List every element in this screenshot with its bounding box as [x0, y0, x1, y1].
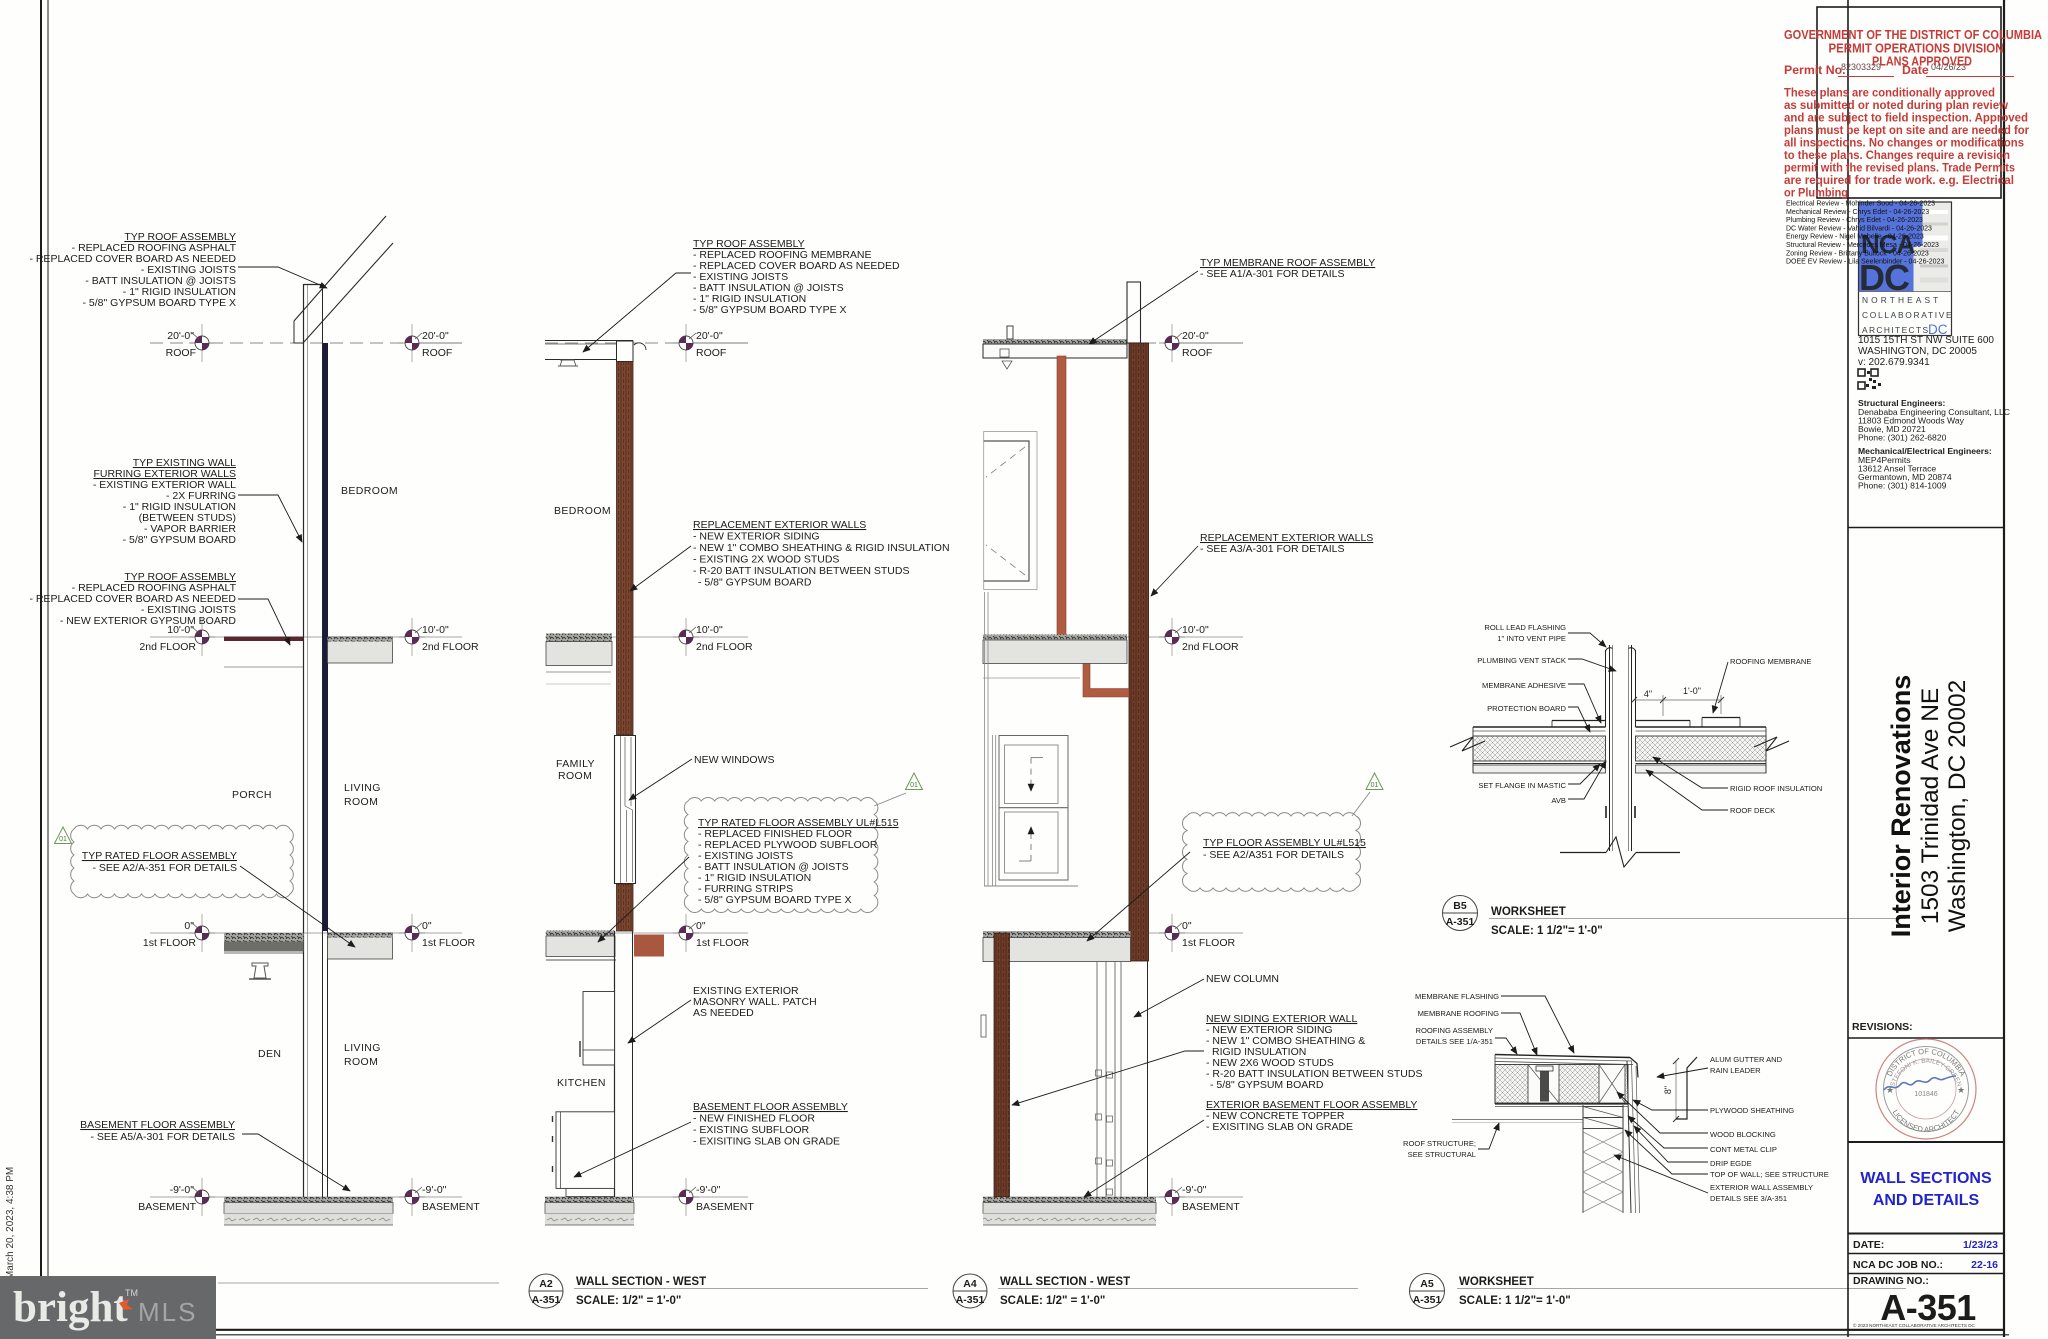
svg-text:ALUM GUTTER AND: ALUM GUTTER AND	[1710, 1055, 1783, 1064]
svg-text:- EXISTING SUBFLOOR: - EXISTING SUBFLOOR	[693, 1124, 810, 1136]
svg-text:DRAWING NO.:: DRAWING NO.:	[1853, 1275, 1929, 1287]
svg-text:20'-0": 20'-0"	[696, 330, 723, 342]
svg-text:A4: A4	[963, 1278, 977, 1290]
svg-text:- NEW EXTERIOR SIDING: - NEW EXTERIOR SIDING	[693, 531, 820, 543]
svg-text:BEDROOM: BEDROOM	[341, 485, 398, 497]
svg-text:1st FLOOR: 1st FLOOR	[422, 937, 476, 949]
svg-text:2nd FLOOR: 2nd FLOOR	[139, 641, 196, 653]
svg-text:- EXISITING SLAB ON GRADE: - EXISITING SLAB ON GRADE	[693, 1136, 840, 1148]
svg-text:10'-0": 10'-0"	[1182, 624, 1209, 636]
svg-text:MLS: MLS	[138, 1297, 197, 1327]
svg-text:NEW WINDOWS: NEW WINDOWS	[694, 754, 775, 766]
svg-text:ROOFING ASSEMBLY: ROOFING ASSEMBLY	[1415, 1026, 1493, 1035]
svg-text:bright: bright	[13, 1284, 128, 1331]
svg-text:WASHINGTON, DC 20005: WASHINGTON, DC 20005	[1858, 346, 1977, 357]
svg-text:B5: B5	[1453, 900, 1467, 912]
svg-text:ROOF DECK: ROOF DECK	[1730, 806, 1775, 815]
svg-text:DC Water Review - Vahid Bilvar: DC Water Review - Vahid Bilvardi - 04-26…	[1786, 225, 1932, 232]
svg-text:2nd FLOOR: 2nd FLOOR	[696, 641, 753, 653]
svg-text:ROOF: ROOF	[422, 347, 452, 359]
svg-text:v: 202.679.9341: v: 202.679.9341	[1858, 357, 1930, 368]
svg-text:20'-0": 20'-0"	[422, 330, 449, 342]
svg-text:AND DETAILS: AND DETAILS	[1873, 1192, 1980, 1209]
svg-text:-9'-0": -9'-0"	[696, 1184, 721, 1196]
svg-text:SET FLANGE IN MASTIC: SET FLANGE IN MASTIC	[1478, 781, 1566, 790]
svg-text:SCALE: 1 1/2"= 1'-0": SCALE: 1 1/2"= 1'-0"	[1491, 925, 1603, 937]
svg-text:A-351: A-351	[1880, 1287, 1976, 1328]
svg-text:BEDROOM: BEDROOM	[554, 505, 611, 517]
svg-text:REVISIONS:: REVISIONS:	[1852, 1021, 1913, 1033]
svg-text:1st FLOOR: 1st FLOOR	[1182, 937, 1236, 949]
svg-text:20'-0": 20'-0"	[1182, 330, 1209, 342]
svg-text:01: 01	[59, 836, 67, 843]
svg-text:DOEE EV Review - Lila Seelenbi: DOEE EV Review - Lila Seelenbinder - 04-…	[1786, 259, 1944, 266]
svg-text:- SEE A2/A-351 FOR DETAILS: - SEE A2/A-351 FOR DETAILS	[92, 862, 237, 874]
svg-text:A5: A5	[1420, 1278, 1434, 1290]
svg-text:Permit No.: Permit No.	[1784, 63, 1846, 77]
svg-text:SCALE: 1/2" = 1'-0": SCALE: 1/2" = 1'-0"	[1000, 1295, 1105, 1307]
svg-text:TYP RATED FLOOR ASSEMBLY: TYP RATED FLOOR ASSEMBLY	[82, 850, 237, 862]
svg-text:RAIN LEADER: RAIN LEADER	[1710, 1066, 1761, 1075]
svg-text:- SEE A1/A-301 FOR DETAILS: - SEE A1/A-301 FOR DETAILS	[1200, 268, 1345, 280]
svg-text:AS NEEDED: AS NEEDED	[693, 1007, 754, 1019]
svg-text:- SEE A3/A-301 FOR DETAILS: - SEE A3/A-301 FOR DETAILS	[1200, 543, 1345, 555]
svg-text:WORKSHEET: WORKSHEET	[1491, 906, 1566, 918]
svg-text:© 2023 NORTHEAST COLLABORATIVE: © 2023 NORTHEAST COLLABORATIVE ARCHITECT…	[1853, 1322, 1976, 1328]
svg-text:0": 0"	[696, 920, 706, 932]
svg-text:ROOM: ROOM	[344, 1056, 378, 1068]
svg-text:Zoning Review - Brittany Bullo: Zoning Review - Brittany Bullock - 04-26…	[1786, 250, 1929, 257]
svg-text:01: 01	[910, 782, 918, 789]
svg-text:8": 8"	[1663, 1086, 1673, 1094]
svg-text:TM: TM	[125, 1288, 138, 1298]
svg-text:WALL SECTIONS: WALL SECTIONS	[1860, 1170, 1992, 1187]
svg-text:BASEMENT: BASEMENT	[696, 1201, 754, 1213]
svg-text:DETAILS SEE 3/A-351: DETAILS SEE 3/A-351	[1710, 1194, 1787, 1203]
svg-text:- 5/8" GYPSUM BOARD TYPE X: - 5/8" GYPSUM BOARD TYPE X	[698, 894, 852, 906]
svg-text:82303329: 82303329	[1841, 62, 1881, 72]
svg-text:AVB: AVB	[1551, 796, 1566, 805]
svg-text:A2: A2	[539, 1278, 553, 1290]
svg-text:10'-0": 10'-0"	[422, 624, 449, 636]
svg-text:A-351: A-351	[1446, 916, 1475, 928]
svg-text:Date: Date	[1902, 63, 1929, 77]
svg-text:SEE STRUCTURAL: SEE STRUCTURAL	[1408, 1150, 1476, 1159]
svg-text:01: 01	[1371, 782, 1379, 789]
svg-text:PLUMBING VENT STACK: PLUMBING VENT STACK	[1477, 656, 1566, 665]
svg-text:-9'-0": -9'-0"	[1182, 1184, 1207, 1196]
svg-text:ROOF: ROOF	[1182, 347, 1212, 359]
svg-text:ROOF STRUCTURE;: ROOF STRUCTURE;	[1403, 1139, 1476, 1148]
svg-text:DRIP EGDE: DRIP EGDE	[1710, 1159, 1752, 1168]
svg-text:DATE:: DATE:	[1853, 1239, 1884, 1251]
svg-text:ROOFING MEMBRANE: ROOFING MEMBRANE	[1730, 657, 1811, 666]
svg-text:A-351: A-351	[532, 1294, 561, 1306]
svg-text:WOOD BLOCKING: WOOD BLOCKING	[1710, 1130, 1776, 1139]
svg-text:DETAILS SEE 1/A-351: DETAILS SEE 1/A-351	[1416, 1037, 1493, 1046]
svg-text:ROOM: ROOM	[558, 770, 592, 782]
svg-text:- 5/8" GYPSUM BOARD: - 5/8" GYPSUM BOARD	[698, 577, 812, 589]
svg-text:1015 15TH ST NW SUITE 600: 1015 15TH ST NW SUITE 600	[1858, 335, 1994, 346]
svg-text:- 5/8" GYPSUM BOARD: - 5/8" GYPSUM BOARD	[123, 534, 237, 546]
svg-text:- SEE A2/A351 FOR DETAILS: - SEE A2/A351 FOR DETAILS	[1203, 849, 1344, 861]
svg-text:Mechanical Review - Chrys Edet: Mechanical Review - Chrys Edet - 04-26-2…	[1786, 209, 1929, 216]
svg-text:or Plumbing: or Plumbing	[1784, 186, 1848, 200]
svg-text:SCALE: 1 1/2"= 1'-0": SCALE: 1 1/2"= 1'-0"	[1459, 1295, 1571, 1307]
svg-text:PROTECTION BOARD: PROTECTION BOARD	[1487, 704, 1566, 713]
svg-text:A-351: A-351	[1413, 1294, 1442, 1306]
svg-text:-9'-0": -9'-0"	[170, 1184, 195, 1196]
svg-text:COLLABORATIVE: COLLABORATIVE	[1862, 310, 1953, 320]
svg-text:2nd FLOOR: 2nd FLOOR	[1182, 641, 1239, 653]
svg-text:1/23/23: 1/23/23	[1963, 1239, 1998, 1251]
svg-text:1" INTO VENT PIPE: 1" INTO VENT PIPE	[1497, 634, 1566, 643]
svg-text:Structural Review - Mercedes M: Structural Review - Mercedes Mesa - 04-2…	[1786, 242, 1939, 249]
svg-text:KITCHEN: KITCHEN	[557, 1077, 606, 1089]
svg-text:Interior Renovations: Interior Renovations	[1886, 675, 1916, 938]
svg-text:4": 4"	[1644, 689, 1652, 699]
svg-text:MEMBRANE ADHESIVE: MEMBRANE ADHESIVE	[1482, 681, 1566, 690]
svg-text:BASEMENT: BASEMENT	[138, 1201, 196, 1213]
svg-text:2nd FLOOR: 2nd FLOOR	[422, 641, 479, 653]
svg-text:ROOF: ROOF	[696, 347, 726, 359]
svg-text:BASEMENT: BASEMENT	[422, 1201, 480, 1213]
svg-text:1st FLOOR: 1st FLOOR	[143, 937, 197, 949]
svg-text:ROLL LEAD FLASHING: ROLL LEAD FLASHING	[1484, 623, 1566, 632]
svg-text:MEMBRANE ROOFING: MEMBRANE ROOFING	[1418, 1009, 1500, 1018]
svg-text:0": 0"	[422, 920, 432, 932]
svg-text:- NEW 1" COMBO SHEATHING & RIG: - NEW 1" COMBO SHEATHING & RIGID INSULAT…	[693, 542, 950, 554]
svg-text:- SEE A5/A-301 FOR DETAILS: - SEE A5/A-301 FOR DETAILS	[90, 1131, 235, 1143]
svg-text:SCALE: 1/2" = 1'-0": SCALE: 1/2" = 1'-0"	[576, 1295, 681, 1307]
svg-text:WALL SECTION - WEST: WALL SECTION - WEST	[1000, 1276, 1130, 1288]
svg-text:REPLACEMENT EXTERIOR WALLS: REPLACEMENT EXTERIOR WALLS	[693, 519, 866, 531]
svg-text:ROOM: ROOM	[344, 796, 378, 808]
svg-text:BASEMENT: BASEMENT	[1182, 1201, 1240, 1213]
svg-text:ARCHITECTS: ARCHITECTS	[1862, 325, 1930, 335]
svg-text:0": 0"	[184, 920, 194, 932]
svg-text:WORKSHEET: WORKSHEET	[1459, 1276, 1534, 1288]
svg-text:- 5/8" GYPSUM BOARD: - 5/8" GYPSUM BOARD	[1210, 1079, 1324, 1091]
svg-text:- 5/8" GYPSUM BOARD TYPE X: - 5/8" GYPSUM BOARD TYPE X	[83, 297, 237, 309]
svg-text:EXTERIOR WALL ASSEMBLY: EXTERIOR WALL ASSEMBLY	[1710, 1183, 1813, 1192]
svg-text:1'-0": 1'-0"	[1683, 686, 1701, 696]
svg-text:Phone: (301) 814-1009: Phone: (301) 814-1009	[1858, 481, 1947, 491]
svg-text:- NEW FINISHED FLOOR: - NEW FINISHED FLOOR	[693, 1113, 815, 1125]
svg-text:Plumbing Review - Chrys Edet -: Plumbing Review - Chrys Edet - 04-26-202…	[1786, 217, 1923, 224]
svg-text:LIVING: LIVING	[344, 1042, 381, 1054]
svg-text:PLYWOOD SHEATHING: PLYWOOD SHEATHING	[1710, 1106, 1794, 1115]
svg-text:- 5/8" GYPSUM BOARD TYPE X: - 5/8" GYPSUM BOARD TYPE X	[693, 304, 847, 316]
svg-text:- EXISTING 2X WOOD STUDS: - EXISTING 2X WOOD STUDS	[693, 554, 839, 566]
svg-text:WALL SECTION - WEST: WALL SECTION - WEST	[576, 1276, 706, 1288]
svg-text:Energy Review - Nigel Mabelle: Energy Review - Nigel Mabelle - 04-26-20…	[1786, 234, 1924, 241]
svg-text:1st FLOOR: 1st FLOOR	[696, 937, 750, 949]
svg-text:LIVING: LIVING	[344, 782, 381, 794]
svg-text:TYP FLOOR ASSEMBLY UL#L515: TYP FLOOR ASSEMBLY UL#L515	[1203, 837, 1366, 849]
svg-text:-9'-0": -9'-0"	[422, 1184, 447, 1196]
svg-text:FAMILY: FAMILY	[556, 758, 595, 770]
svg-text:04/26/23: 04/26/23	[1931, 62, 1966, 72]
svg-text:CONT METAL CLIP: CONT METAL CLIP	[1710, 1145, 1777, 1154]
svg-text:DEN: DEN	[258, 1048, 281, 1060]
svg-text:101846: 101846	[1914, 1091, 1937, 1098]
svg-text:Electrical Review - Mohinder S: Electrical Review - Mohinder Sood - 04-2…	[1786, 201, 1935, 208]
svg-text:Washington, DC 20002: Washington, DC 20002	[1944, 680, 1971, 932]
svg-text:NEW COLUMN: NEW COLUMN	[1206, 973, 1279, 985]
svg-text:1503 Trinidad Ave NE: 1503 Trinidad Ave NE	[1917, 688, 1944, 925]
svg-text:BASEMENT FLOOR ASSEMBLY: BASEMENT FLOOR ASSEMBLY	[693, 1101, 848, 1113]
svg-text:NCA DC JOB NO.:: NCA DC JOB NO.:	[1853, 1259, 1943, 1271]
svg-text:A-351: A-351	[956, 1294, 985, 1306]
svg-text:ROOF: ROOF	[166, 347, 196, 359]
svg-text:BASEMENT FLOOR ASSEMBLY: BASEMENT FLOOR ASSEMBLY	[80, 1119, 235, 1131]
svg-text:NORTHEAST: NORTHEAST	[1862, 295, 1941, 305]
svg-text:LICENSED ARCHITECT: LICENSED ARCHITECT	[1891, 1108, 1962, 1134]
svg-text:0": 0"	[1182, 920, 1192, 932]
svg-text:- NEW EXTERIOR GYPSUM BOARD: - NEW EXTERIOR GYPSUM BOARD	[60, 615, 237, 627]
svg-text:★: ★	[1957, 1085, 1965, 1095]
svg-text:- EXISITING SLAB ON GRADE: - EXISITING SLAB ON GRADE	[1206, 1121, 1353, 1133]
svg-text:10'-0": 10'-0"	[696, 624, 723, 636]
svg-text:PORCH: PORCH	[232, 789, 272, 801]
svg-text:RIGID ROOF INSULATION: RIGID ROOF INSULATION	[1730, 784, 1822, 793]
svg-text:Phone: (301) 262-6820: Phone: (301) 262-6820	[1858, 433, 1947, 443]
svg-text:MEMBRANE FLASHING: MEMBRANE FLASHING	[1415, 992, 1499, 1001]
svg-text:- R-20 BATT INSULATION BETWEEN: - R-20 BATT INSULATION BETWEEN STUDS	[693, 565, 909, 577]
svg-text:22-16: 22-16	[1971, 1259, 1998, 1271]
svg-text:20'-0": 20'-0"	[167, 330, 194, 342]
svg-text:TOP OF WALL; SEE STRUCTURE: TOP OF WALL; SEE STRUCTURE	[1710, 1170, 1829, 1179]
